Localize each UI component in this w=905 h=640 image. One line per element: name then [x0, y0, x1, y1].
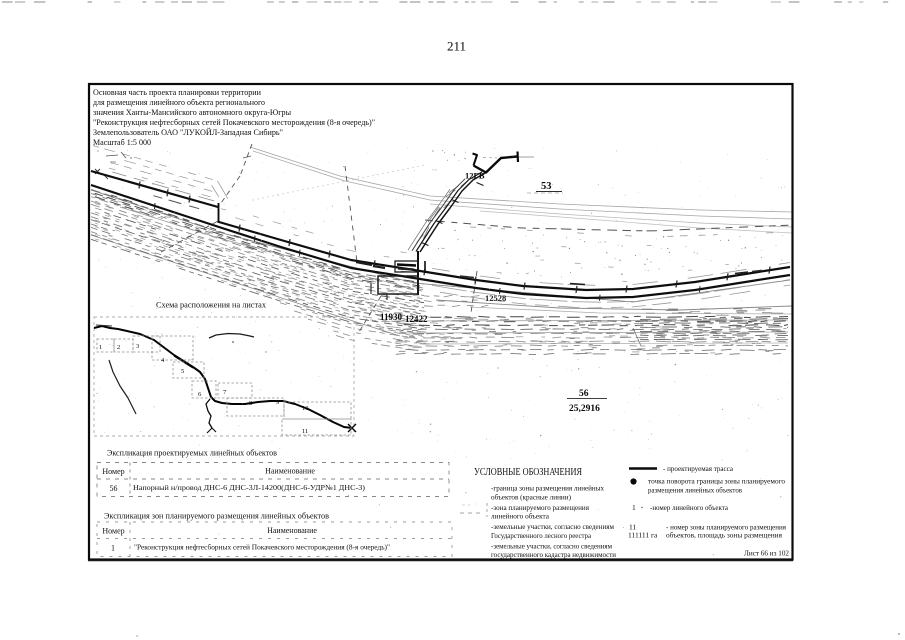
svg-text:"Реконструкция нефтесборных се: "Реконструкция нефтесборных сетей Покаче… [93, 117, 375, 127]
svg-text:-земельные участки, согласно с: -земельные участки, согласно сведениям [491, 543, 612, 551]
svg-text:56: 56 [110, 484, 118, 493]
svg-text:Основная часть проекта планиро: Основная часть проекта планировки террит… [93, 87, 261, 97]
svg-text:Напорный н/провод ДНС-6 ДНС-3Л: Напорный н/провод ДНС-6 ДНС-3Л-14200(ДНС… [133, 483, 365, 492]
svg-text:11930: 11930 [380, 312, 403, 322]
svg-text:- проектируемая трасса: - проектируемая трасса [663, 465, 734, 473]
svg-text:объектов (красные линии): объектов (красные линии) [491, 494, 572, 502]
svg-text:-номер линейного объекта: -номер линейного объекта [650, 504, 729, 512]
svg-text:2: 2 [117, 344, 120, 351]
svg-text:53: 53 [541, 181, 552, 192]
svg-text:211: 211 [447, 39, 466, 54]
svg-text:1: 1 [111, 544, 115, 553]
svg-text:Лист 66 из 102: Лист 66 из 102 [744, 549, 789, 558]
svg-text:6: 6 [198, 391, 202, 398]
svg-text:УСЛОВНЫЕ ОБОЗНАЧЕНИЯ: УСЛОВНЫЕ ОБОЗНАЧЕНИЯ [474, 467, 582, 478]
svg-text:точка поворота границы зоны пл: точка поворота границы зоны планируемого [648, 478, 785, 486]
svg-text:1: 1 [632, 503, 636, 512]
svg-text:4: 4 [161, 357, 165, 364]
svg-text:Экспликация проектируемых лине: Экспликация проектируемых линейных объек… [107, 449, 277, 458]
svg-text:для размещения линейного объек: для размещения линейного объекта региона… [93, 97, 266, 107]
svg-text:11: 11 [302, 428, 308, 435]
svg-text:государственного кадастра недв: государственного кадастра недвижимости [491, 551, 616, 559]
svg-text:Наименование: Наименование [267, 526, 317, 535]
svg-text:Экспликация зон планируемого р: Экспликация зон планируемого размещения … [104, 512, 329, 521]
svg-text:Землепользователь ОАО "ЛУКОЙЛ-: Землепользователь ОАО "ЛУКОЙЛ-Западная С… [93, 127, 283, 137]
svg-text:значения Ханты-Мансийского авт: значения Ханты-Мансийского автономного о… [93, 107, 291, 117]
svg-text:3: 3 [136, 343, 139, 350]
svg-text:12422: 12422 [405, 314, 428, 324]
svg-text:-граница зоны размещения линей: -граница зоны размещения линейных [491, 485, 604, 493]
svg-text:Схема расположения на листах: Схема расположения на листах [156, 301, 266, 310]
svg-text:Наименование: Наименование [265, 467, 315, 476]
svg-text:111111 га: 111111 га [628, 531, 658, 540]
svg-text:- номер зоны планируемого разм: - номер зоны планируемого размещения [666, 524, 787, 532]
svg-text:"Реконструкция нефтесборных се: "Реконструкция нефтесборных сетей Покаче… [134, 543, 390, 552]
svg-text:Государственного лесного реест: Государственного лесного реестра [491, 532, 592, 540]
svg-text:-земельные участки, согласно с: -земельные участки, согласно сведениям [491, 523, 614, 531]
svg-text:8: 8 [249, 400, 252, 407]
svg-text:25,2916: 25,2916 [569, 404, 600, 414]
svg-text:1: 1 [99, 344, 102, 351]
svg-text:9: 9 [276, 399, 279, 406]
svg-text:-зона планируемого размещения: -зона планируемого размещения [491, 504, 590, 512]
svg-text:7: 7 [223, 389, 227, 396]
svg-text:Масштаб 1:5 000: Масштаб 1:5 000 [93, 137, 152, 147]
svg-text:Номер: Номер [102, 467, 124, 476]
svg-text:10: 10 [302, 405, 309, 412]
svg-text:5: 5 [181, 368, 184, 375]
svg-text:56: 56 [579, 389, 589, 399]
svg-text:линейного объекта: линейного объекта [491, 513, 550, 521]
svg-text:12ГВ: 12ГВ [465, 171, 485, 181]
svg-text:размещения линейных объектов: размещения линейных объектов [648, 487, 743, 495]
svg-text:Номер: Номер [102, 527, 124, 536]
svg-text:объектов, площадь зоны размеще: объектов, площадь зоны размещения [666, 532, 783, 540]
